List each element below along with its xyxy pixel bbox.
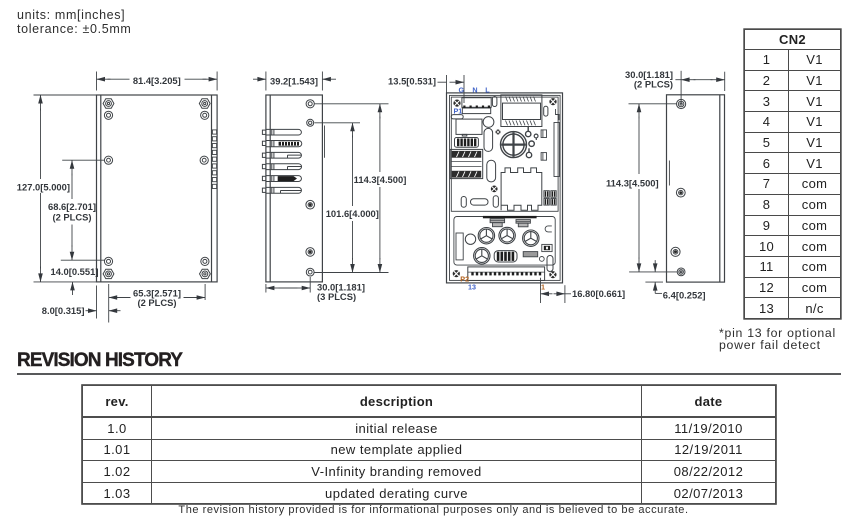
svg-text:14.0[0.551]: 14.0[0.551] <box>51 266 99 277</box>
svg-text:16.80[0.661]: 16.80[0.661] <box>572 288 625 299</box>
svg-text:(3 PLCS): (3 PLCS) <box>317 291 356 302</box>
svg-text:13.5[0.531]: 13.5[0.531] <box>388 76 436 87</box>
svg-text:101.6[4.000]: 101.6[4.000] <box>326 208 379 219</box>
svg-text:81.4[3.205]: 81.4[3.205] <box>133 75 181 86</box>
svg-text:1: 1 <box>541 283 545 292</box>
svg-text:39.2[1.543]: 39.2[1.543] <box>270 76 318 87</box>
svg-text:(2 PLCS): (2 PLCS) <box>52 211 91 222</box>
svg-text:114.3[4.500]: 114.3[4.500] <box>606 178 659 189</box>
svg-text:L: L <box>485 86 490 95</box>
svg-text:(2 PLCS): (2 PLCS) <box>634 79 673 90</box>
svg-text:127.0[5.000]: 127.0[5.000] <box>17 181 70 192</box>
svg-text:6.4[0.252]: 6.4[0.252] <box>663 289 706 300</box>
svg-text:N: N <box>472 86 477 95</box>
svg-text:(2 PLCS): (2 PLCS) <box>137 297 176 308</box>
svg-text:13: 13 <box>468 283 476 292</box>
svg-text:P1: P1 <box>454 107 463 116</box>
svg-text:114.3[4.500]: 114.3[4.500] <box>354 174 407 185</box>
svg-text:8.0[0.315]: 8.0[0.315] <box>42 305 85 316</box>
